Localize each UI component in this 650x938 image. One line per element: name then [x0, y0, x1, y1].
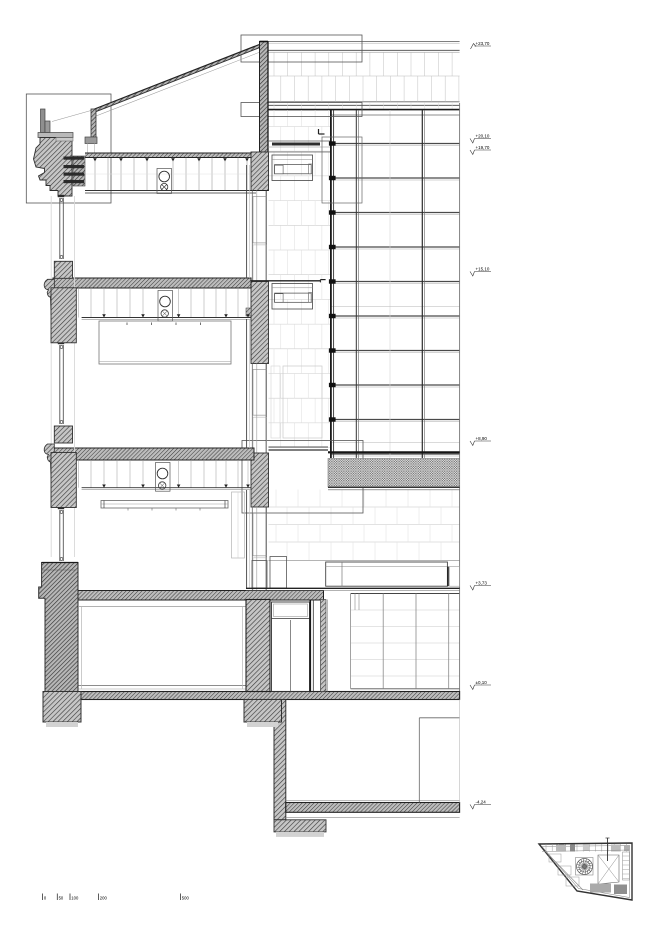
svg-text:+23,70: +23,70: [476, 41, 490, 46]
svg-text:-4,24: -4,24: [476, 800, 487, 805]
svg-text:+8,90: +8,90: [476, 436, 488, 441]
svg-text:±0,10: ±0,10: [476, 680, 488, 685]
svg-text:+15,10: +15,10: [476, 267, 490, 272]
svg-text:100: 100: [71, 896, 79, 901]
svg-text:+19,70: +19,70: [476, 145, 490, 150]
svg-text:+20,10: +20,10: [476, 134, 490, 139]
svg-text:200: 200: [100, 896, 108, 901]
svg-text:50: 50: [59, 896, 64, 901]
svg-text:+3,73: +3,73: [476, 581, 488, 586]
svg-text:500: 500: [182, 896, 190, 901]
